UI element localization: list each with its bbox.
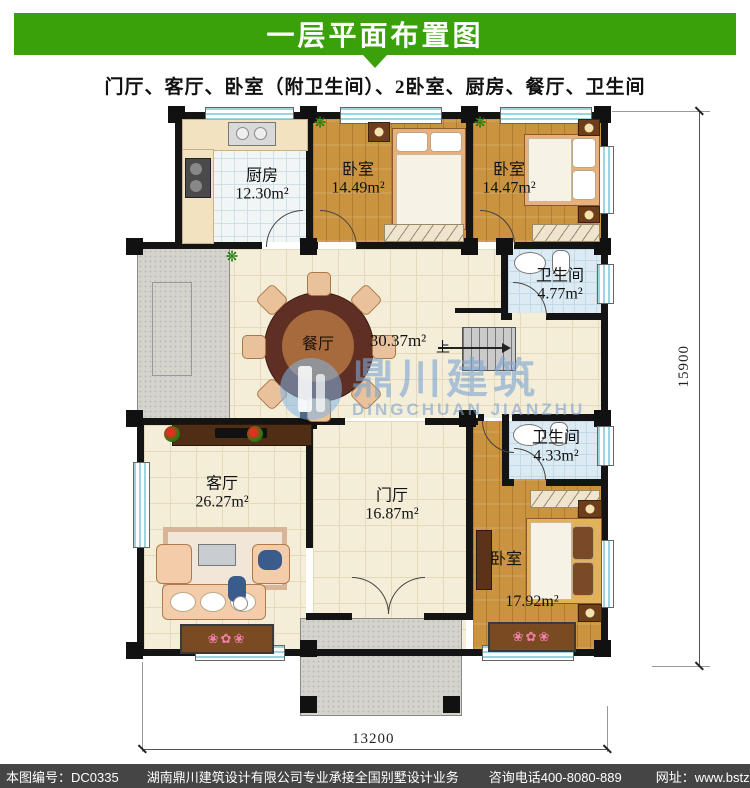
plant-icon: ❋ <box>226 251 239 266</box>
dining-chair <box>307 272 331 296</box>
plan-number: 本图编号：DC0335 <box>6 767 119 786</box>
plant-icon: ❋ <box>474 117 487 132</box>
wall-foyer-bed3 <box>466 414 473 620</box>
flowers-icon: ❀✿❀ <box>208 631 247 646</box>
porch-column <box>443 696 460 713</box>
pillow <box>572 138 596 168</box>
column <box>594 410 611 427</box>
dim-width-label: 13200 <box>352 731 395 748</box>
wall-bath-upper-south-b <box>546 313 608 320</box>
flower-planter-right: ❀✿❀ <box>488 622 576 652</box>
coffee-table <box>198 544 236 566</box>
wall-foyer-south-b <box>424 613 470 620</box>
column <box>126 238 143 255</box>
nightstand <box>578 206 600 223</box>
nightstand <box>578 119 600 136</box>
room-label-bedroom1: 卧室 14.49m² <box>331 162 384 199</box>
pillow <box>572 170 596 200</box>
wall-bath-lower-south-b <box>546 479 608 486</box>
window-bedroom1 <box>340 107 442 124</box>
terrace-railing <box>152 282 192 376</box>
pillow <box>396 132 428 152</box>
wall-bedrooms-divider <box>466 112 473 249</box>
window-bath-upper <box>597 264 614 304</box>
wall-kitchen-west <box>175 112 182 248</box>
person-head-icon <box>233 596 248 611</box>
company-name: 湖南鼎川建筑设计有限公司专业承接全国别墅设计业务 <box>147 767 459 786</box>
sofa-cushion <box>200 592 226 612</box>
stove-burner-icon <box>190 163 202 175</box>
room-list-subtitle: 门厅、客厅、卧室（附卫生间）、2卧室、厨房、餐厅、卫生间 <box>0 72 750 99</box>
dim-extension-left <box>142 662 143 752</box>
room-area-bedroom3: 17.92m² <box>505 593 558 611</box>
room-label-bedroom2: 卧室 14.47m² <box>482 162 535 199</box>
duvet <box>530 522 572 600</box>
topiary-plant-icon <box>247 426 263 442</box>
website-url: 网址：www.bstzcs.com <box>656 767 750 786</box>
room-label-bath-upper: 卫生间 4.77m² <box>536 268 584 305</box>
column <box>300 640 317 657</box>
sink-basin-icon <box>254 127 267 140</box>
pillow <box>572 526 594 560</box>
stove-burner-icon <box>190 180 202 192</box>
stair-up-label: 上 <box>436 337 450 357</box>
porch-column <box>300 696 317 713</box>
wall-stair-stub <box>455 308 508 313</box>
column <box>126 410 143 427</box>
title-banner: 一层平面布置图 <box>14 13 736 55</box>
wall-bath-upper-south-a <box>501 313 512 320</box>
armchair-left <box>156 544 192 584</box>
room-label-bath-lower: 卫生间 4.33m² <box>532 430 580 467</box>
pillow <box>430 132 462 152</box>
dim-line-vertical <box>699 111 700 667</box>
room-label-living: 客厅 26.27m² <box>195 476 248 513</box>
page-title: 一层平面布置图 <box>266 14 483 54</box>
banner-pointer-triangle <box>363 55 387 68</box>
pillow <box>572 562 594 596</box>
room-area-dining: 30.37m² <box>370 331 427 351</box>
room-label-dining: 餐厅 <box>302 336 334 354</box>
wall-bed3-north-a <box>478 414 484 421</box>
stair-arrow-icon <box>502 343 511 353</box>
wall-foyer-south-a <box>306 613 352 620</box>
plant-icon: ❋ <box>314 117 327 132</box>
column <box>594 640 611 657</box>
column <box>459 410 476 427</box>
sink-basin-icon <box>236 127 249 140</box>
dim-line-horizontal <box>142 749 608 750</box>
dim-extension-top <box>612 111 710 112</box>
dim-extension-right <box>607 706 608 752</box>
flower-planter-left: ❀✿❀ <box>180 624 274 654</box>
bedroom1-wardrobe <box>384 224 464 242</box>
dining-chair <box>242 335 266 359</box>
nightstand <box>578 500 602 518</box>
nightstand <box>368 122 390 142</box>
window-living-west <box>133 462 150 548</box>
window-bath-lower <box>597 426 614 466</box>
bedroom2-wardrobe <box>532 224 600 242</box>
footer-bar: 本图编号：DC0335 湖南鼎川建筑设计有限公司专业承接全国别墅设计业务 咨询电… <box>0 764 750 788</box>
topiary-plant-icon <box>164 426 180 442</box>
nightstand <box>578 604 602 622</box>
dim-height-label: 15900 <box>676 345 693 388</box>
duvet <box>396 154 462 226</box>
flowers-icon: ❀✿❀ <box>513 629 552 644</box>
entry-porch <box>300 618 462 716</box>
room-label-bedroom3: 卧室 <box>490 551 522 569</box>
column <box>126 642 143 659</box>
room-label-foyer: 门厅 16.87m² <box>365 488 418 525</box>
dining-chair <box>307 398 331 422</box>
sofa-cushion <box>170 592 196 612</box>
floor-plan-page: 一层平面布置图 门厅、客厅、卧室（附卫生间）、2卧室、厨房、餐厅、卫生间 <box>0 0 750 788</box>
person-figure <box>258 550 282 570</box>
room-label-kitchen: 厨房 12.30m² <box>235 168 288 205</box>
wall-row1-c <box>356 242 478 249</box>
wall-bath-lower-south-a <box>502 479 514 486</box>
phone-number: 咨询电话400-8080-889 <box>489 767 622 786</box>
